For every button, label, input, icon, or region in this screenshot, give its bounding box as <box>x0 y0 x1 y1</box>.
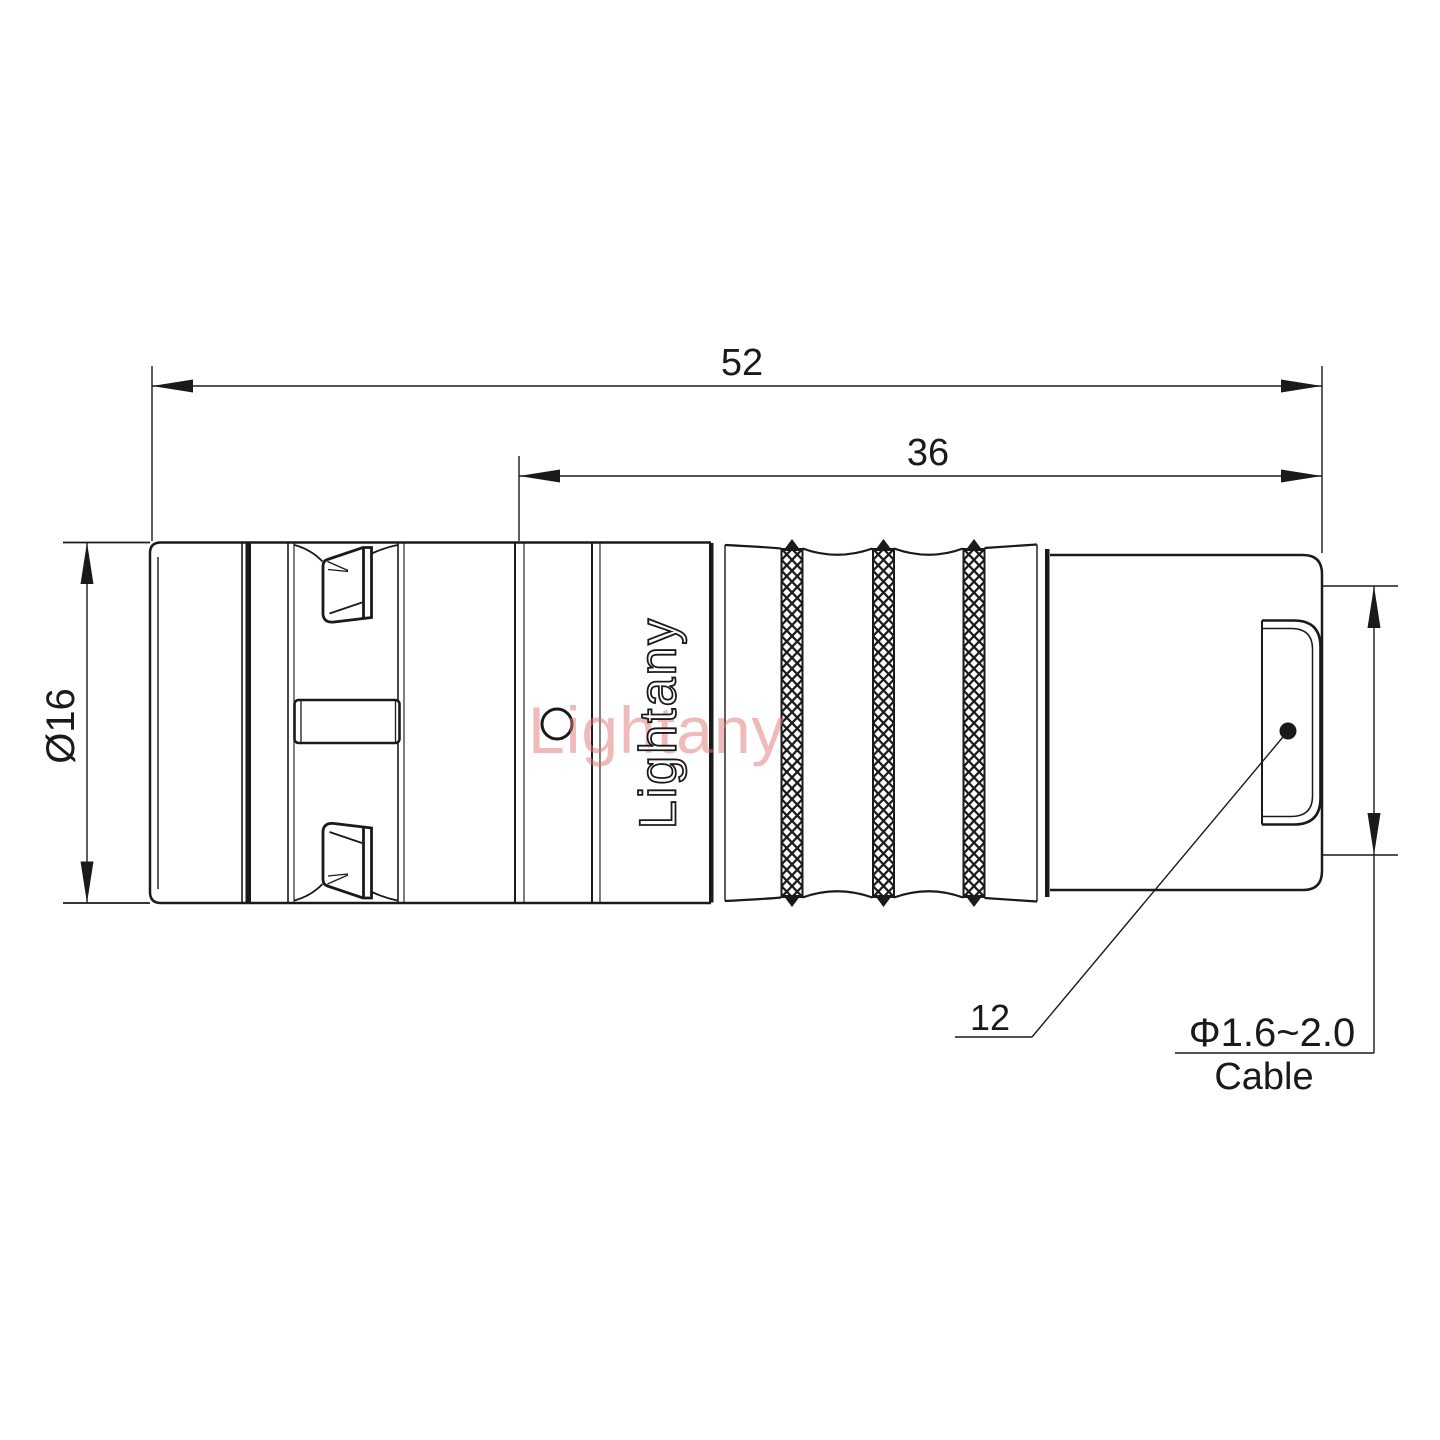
cable-word-label: Cable <box>1214 1056 1313 1098</box>
body-brand-text: Lightany <box>630 617 688 830</box>
dim-36-label: 36 <box>907 432 949 474</box>
boot-ref-label: 12 <box>970 997 1010 1038</box>
knurl-lattice <box>873 549 894 897</box>
coupling-window <box>295 700 400 743</box>
technical-drawing-canvas: Lightany Lightany 52 36 Ø16 Φ1.6~2.0 Cab… <box>0 0 1440 1440</box>
dim-52-label: 52 <box>721 342 763 384</box>
backshell-thick-edge-right <box>1045 549 1050 897</box>
connector-drawing: Lightany Lightany 52 36 Ø16 Φ1.6~2.0 Cab… <box>0 0 1440 1440</box>
window-outline <box>295 700 400 743</box>
knurl-band-3 <box>964 539 985 907</box>
leader-dot-icon <box>1280 723 1297 740</box>
knurl-lattice <box>964 549 985 897</box>
groove-band <box>246 544 252 903</box>
cable-range-label: Φ1.6~2.0 <box>1189 1011 1355 1055</box>
knurl-band-2 <box>873 539 894 907</box>
dim-16-label: Ø16 <box>39 688 83 764</box>
